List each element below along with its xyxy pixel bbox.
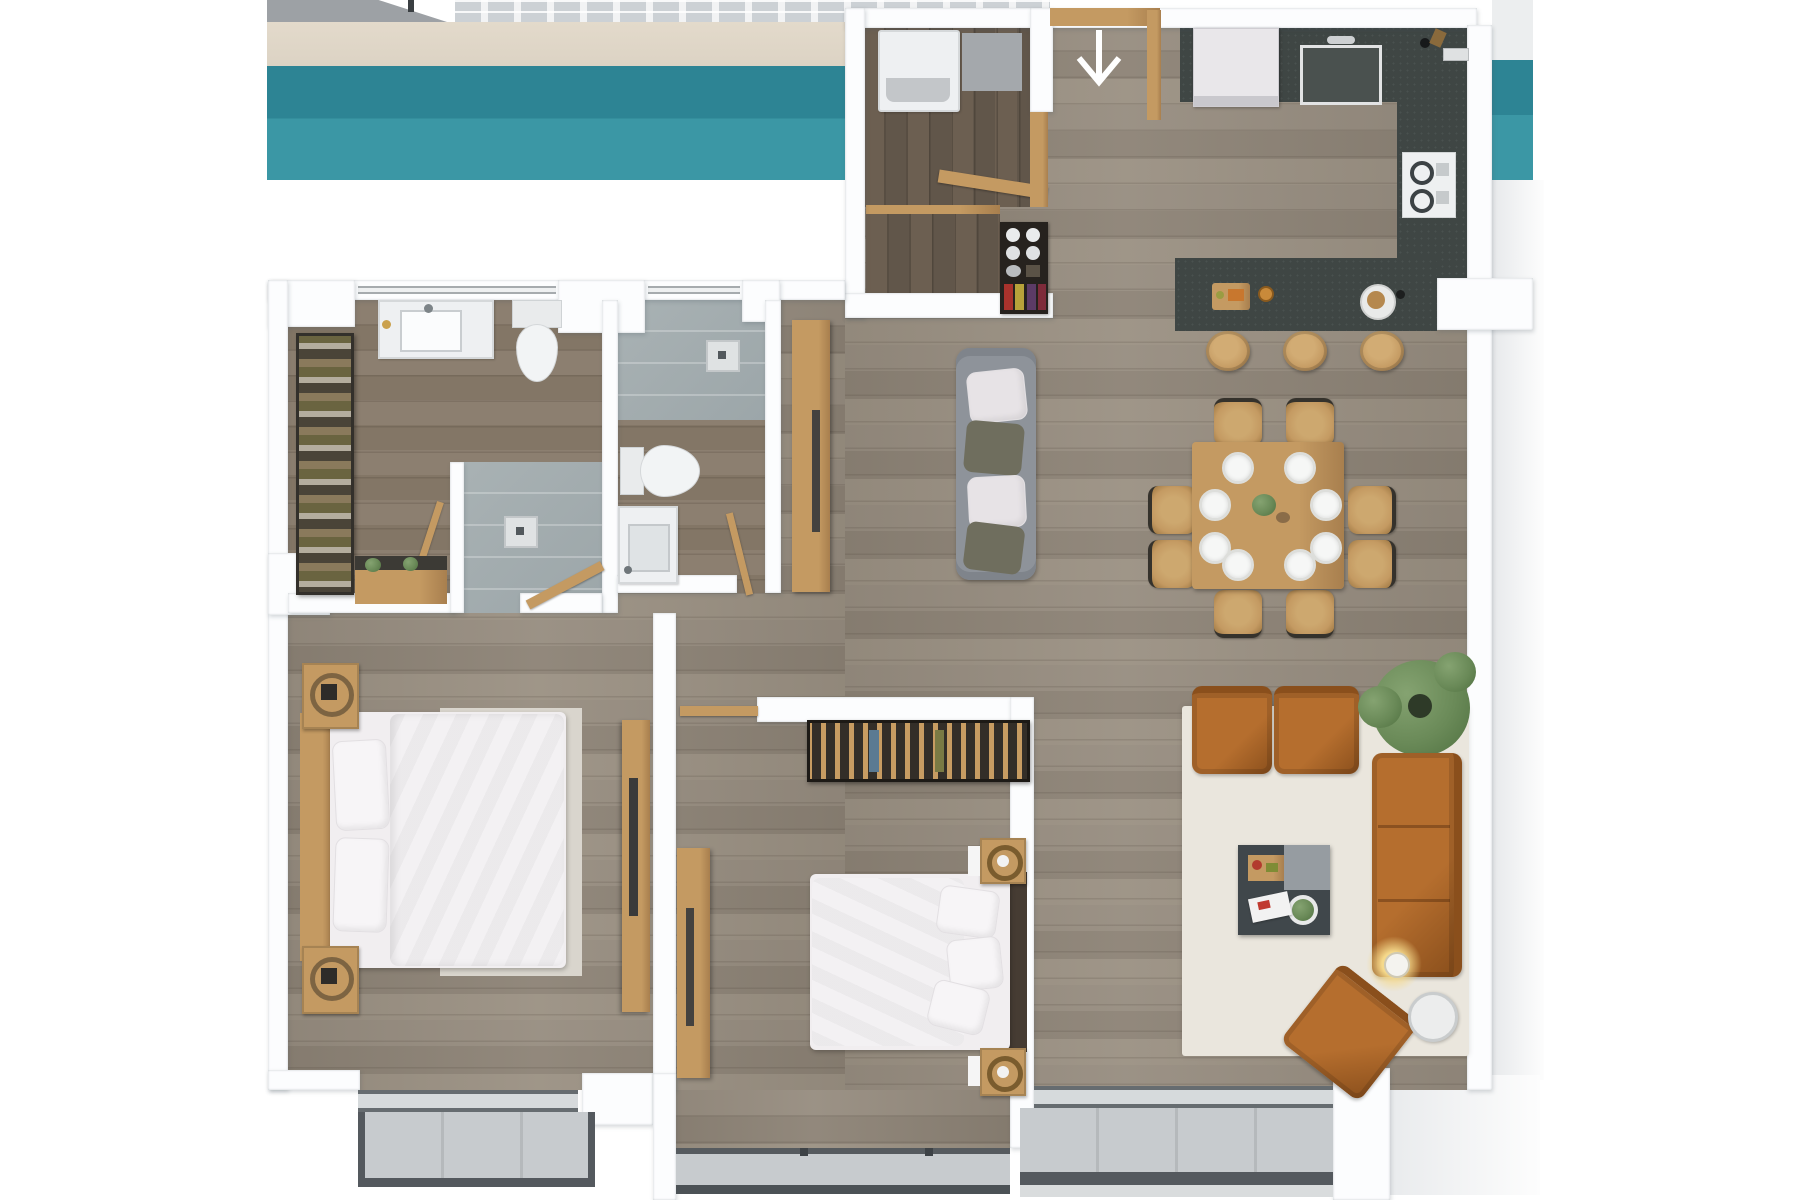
serving-tray — [1248, 855, 1284, 881]
floor-plan-canvas — [0, 0, 1800, 1200]
bathroom1-vanity — [378, 300, 494, 359]
outside-bottom-right — [1390, 1075, 1540, 1195]
bedroom1-nightstand — [302, 946, 359, 1014]
bedroom2-nightstand — [980, 1048, 1026, 1096]
refrigerator — [1193, 28, 1279, 107]
wall-right-outer — [1467, 25, 1492, 1090]
shelf-jar-purple — [1027, 284, 1036, 310]
armchair — [1192, 686, 1272, 774]
shelf-plate — [1006, 246, 1020, 260]
vanity-basin — [400, 310, 462, 352]
balcony-living — [1020, 1108, 1333, 1172]
floor-pantry — [866, 212, 1000, 295]
dining-chair — [1214, 590, 1262, 638]
bedside-mat — [968, 1056, 980, 1086]
island-cutting-board — [1212, 283, 1250, 310]
dining-chair — [1348, 540, 1396, 588]
wall-bath2-right — [765, 300, 781, 593]
burner — [1436, 191, 1449, 204]
window-bedroom2-sill — [676, 1154, 1010, 1185]
island-plate-food — [1367, 291, 1385, 309]
bedroom2-bed — [810, 874, 1010, 1050]
speaker-dot — [997, 855, 1009, 867]
coffee-table — [1238, 845, 1330, 935]
entry-down-arrow-icon — [1064, 26, 1134, 98]
wall-bedroom1-right — [653, 613, 676, 1090]
bed1-pillow — [332, 837, 389, 933]
board-item — [1228, 289, 1244, 301]
tray-food — [1252, 860, 1262, 870]
bar-stool — [1206, 331, 1250, 371]
cooktop — [1402, 152, 1456, 218]
place-setting — [1222, 452, 1254, 484]
vanity-soap — [382, 320, 391, 329]
floor-lamp — [1384, 952, 1410, 978]
island-item-dark — [1396, 290, 1405, 299]
window-living — [1034, 1086, 1333, 1108]
closet-garment-blue — [869, 730, 879, 772]
sofa-cushion-white — [965, 367, 1028, 425]
board-item — [1216, 291, 1224, 299]
bed2-pillow — [935, 884, 1001, 940]
bedroom2-nightstand — [980, 838, 1026, 884]
dining-chair — [1286, 398, 1334, 446]
bedroom1-bed — [330, 712, 566, 968]
sink-faucet-icon — [624, 566, 632, 574]
table-centerpiece-plant — [1252, 494, 1276, 516]
washer-front — [886, 78, 950, 102]
drain-dot — [718, 351, 726, 359]
shower-drain-bath2 — [706, 340, 740, 372]
dining-chair — [1348, 486, 1396, 534]
bedside-mat — [968, 846, 980, 876]
entry-corner-cabinet — [1030, 112, 1048, 207]
plant-pot — [1408, 694, 1432, 718]
balcony-living-rail — [1020, 1172, 1333, 1185]
dining-chair — [1286, 590, 1334, 638]
pantry-shelf-unit — [1000, 222, 1048, 314]
shower-drain-bath1 — [504, 516, 538, 548]
burner — [1410, 189, 1434, 213]
pool-band — [267, 66, 845, 180]
bed1-pillow — [332, 739, 391, 832]
grey-sofa — [956, 348, 1036, 580]
window-top-bath2 — [648, 286, 740, 294]
washer — [878, 30, 960, 112]
place-setting — [1284, 549, 1316, 581]
coffee-table-light-half — [1284, 845, 1330, 890]
sink-basin — [628, 524, 670, 572]
bar-stool — [1360, 331, 1404, 371]
outside-right-top — [1492, 0, 1533, 60]
shelf-plate — [1026, 246, 1040, 260]
nightstand-lamp — [321, 968, 337, 984]
window-bedroom2-bottom — [676, 1185, 1010, 1194]
bathroom2-sink — [618, 506, 678, 584]
window-mullion — [800, 1148, 808, 1156]
pool-band-right — [1492, 60, 1533, 180]
burner — [1410, 161, 1434, 185]
window-mullion — [925, 1148, 933, 1156]
entry-door-frame — [1147, 10, 1161, 120]
wall-top-kitchen — [845, 8, 1477, 28]
round-side-table — [1408, 992, 1458, 1042]
shelf-jar-red — [1004, 284, 1013, 310]
tile-tick — [408, 0, 414, 12]
island-plate — [1360, 284, 1396, 320]
shelf-jar-yellow — [1015, 284, 1024, 310]
armchair — [1274, 686, 1359, 774]
faucet-icon — [1327, 36, 1355, 44]
balcony-bedroom1 — [358, 1112, 595, 1187]
wall-bottom-mid-col — [653, 1073, 676, 1200]
table-centerpiece-bowl — [1276, 512, 1290, 523]
bedroom2-sideboard — [677, 848, 710, 1078]
sofa-cushion-olive — [962, 521, 1025, 576]
wall-bedroom2-top — [757, 697, 1012, 722]
plant-leaf-cluster — [1434, 652, 1476, 692]
speaker-dot — [997, 1066, 1009, 1078]
plant-leaf-cluster — [1358, 686, 1402, 728]
place-setting — [1284, 452, 1316, 484]
bedroom1-headboard — [300, 713, 332, 961]
laundry-mat — [962, 33, 1022, 91]
shelf-plate — [1006, 228, 1020, 242]
cabinet-handle — [812, 410, 820, 532]
console-plant — [403, 557, 418, 571]
window-top-bath1 — [358, 286, 556, 294]
bathroom1-console — [355, 556, 447, 604]
shelf-plate — [1026, 228, 1040, 242]
dining-chair — [1148, 486, 1196, 534]
place-setting — [1199, 489, 1231, 521]
bedroom1-nightstand — [302, 663, 359, 729]
bar-stool — [1283, 331, 1327, 371]
hallway-tall-cabinet — [792, 320, 830, 592]
shelf-bowl — [1006, 265, 1021, 277]
bedroom2-door-leaf — [680, 706, 758, 716]
counter-item-tray — [1443, 48, 1469, 61]
shower-partition-bath1 — [450, 462, 464, 613]
drain-dot — [516, 527, 524, 535]
nightstand-lamp — [321, 684, 337, 700]
wall-right-stub — [1437, 278, 1533, 330]
table-plant — [1292, 899, 1314, 921]
floor-bedroom2-ext — [653, 1090, 1010, 1150]
dining-chair — [1148, 540, 1196, 588]
wall-entry-left — [845, 8, 865, 318]
tv-screen — [629, 778, 638, 916]
vanity-faucet-icon — [424, 304, 433, 313]
kitchen-sink — [1300, 45, 1382, 105]
sofa-seam — [1378, 825, 1450, 828]
balcony-living-edge — [1020, 1185, 1333, 1197]
closet-garment-olive — [935, 730, 944, 772]
tray-food — [1266, 863, 1278, 872]
entry-threshold — [1050, 8, 1160, 26]
console-plant — [365, 558, 381, 572]
shoe-shelf — [296, 333, 354, 595]
bed1-duvet — [390, 714, 564, 966]
place-setting — [1222, 549, 1254, 581]
wall-bottom-left-block — [268, 1070, 360, 1090]
pantry-threshold — [866, 205, 1000, 214]
place-setting — [1310, 489, 1342, 521]
burner — [1436, 163, 1449, 176]
shelf-jar-maroon — [1038, 284, 1046, 310]
island-spice — [1258, 286, 1274, 302]
bedroom1-tv-sideboard — [622, 720, 650, 1012]
shelf-jar-dark — [1026, 265, 1040, 277]
sofa-cushion-olive — [963, 420, 1025, 477]
large-potted-plant — [1372, 660, 1470, 756]
sand-strip — [267, 22, 845, 66]
sofa-seam — [1378, 899, 1450, 902]
window-bedroom1 — [358, 1090, 578, 1112]
dining-chair — [1214, 398, 1262, 446]
sideboard-handle — [686, 908, 694, 1026]
wall-bath-divider — [602, 300, 618, 613]
bedroom2-open-closet — [807, 720, 1030, 782]
wall-left-outer — [268, 280, 288, 1090]
concrete-slab — [267, 0, 447, 22]
counter-item-dark — [1420, 38, 1430, 48]
